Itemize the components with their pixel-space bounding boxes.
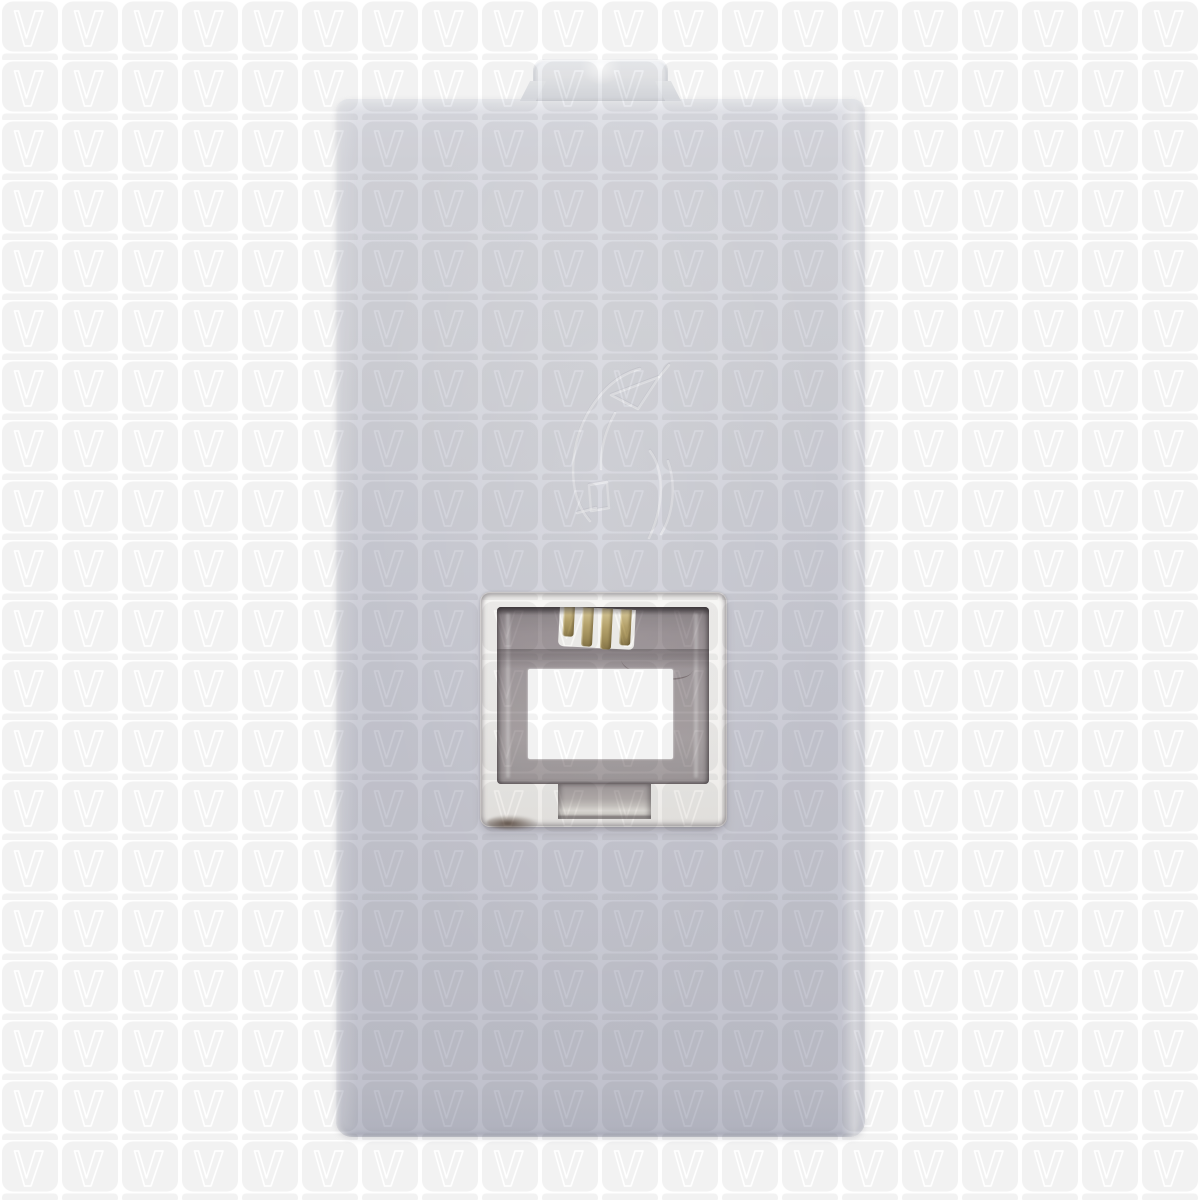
socket-face-plate [336,99,865,1137]
cavity-wall-highlight-left [506,613,510,778]
telephone-handset-icon [562,361,694,549]
clip-flare-left [520,81,546,101]
plate-top-edge-highlight [336,99,865,112]
connector-latch-notch [558,784,651,819]
shadow-spot [487,815,539,830]
cavity-inner-shadow [497,649,709,669]
clip-flare-right [655,81,681,101]
cavity-top-shadow [497,607,709,615]
mounting-clip-tab [533,59,668,101]
jack-cavity [497,607,709,784]
rj11-jack-bezel [480,592,727,827]
jack-open-window [528,669,673,759]
product-photo-stage [0,0,1200,1200]
cavity-wall-highlight-right [694,613,698,778]
